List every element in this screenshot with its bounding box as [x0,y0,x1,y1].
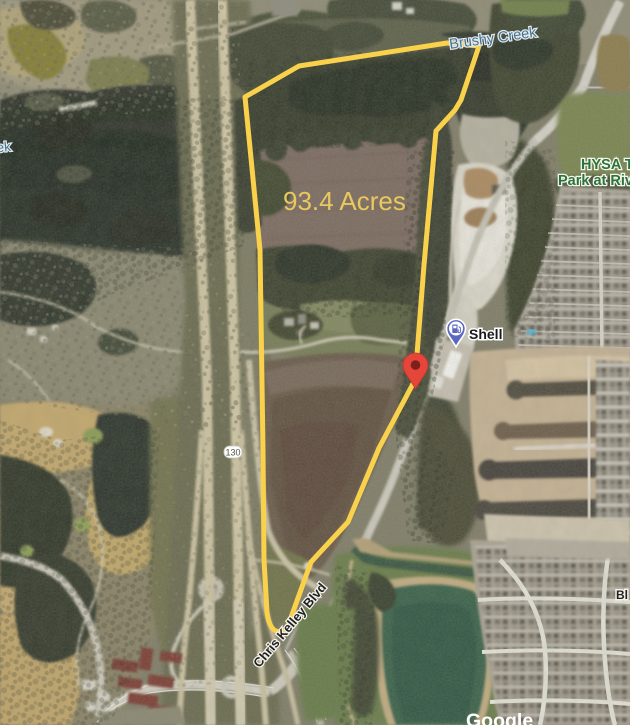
svg-text:93.4 Acres: 93.4 Acres [283,186,406,216]
svg-text:Park at Riv: Park at Riv [558,173,630,189]
svg-text:HYSA T: HYSA T [581,157,630,173]
svg-text:Bl: Bl [616,588,628,602]
svg-text:ek: ek [0,139,12,155]
svg-text:130: 130 [225,448,240,458]
svg-text:Shell: Shell [469,326,502,342]
svg-text:Google: Google [466,710,533,725]
